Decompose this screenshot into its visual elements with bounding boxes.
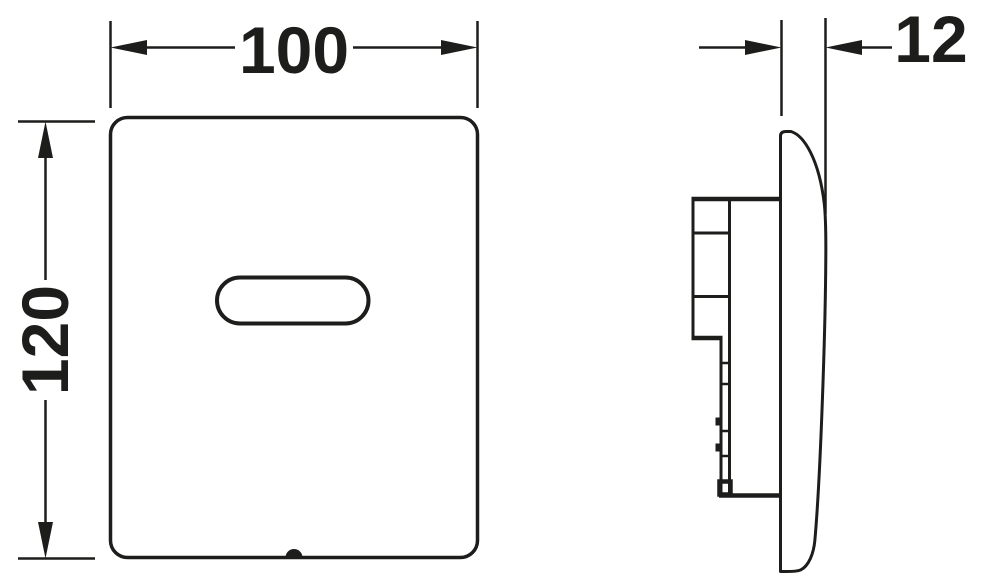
arrowhead-down-icon: [38, 522, 53, 559]
dimension-height-label: 120: [8, 285, 82, 395]
side-view: [692, 132, 826, 572]
plate-front-outline: [111, 118, 478, 558]
dimension-depth-label: 12: [894, 2, 967, 76]
electronics-housing: [692, 198, 781, 496]
dimension-depth: 12: [699, 2, 968, 214]
arrowhead-up-icon: [38, 122, 53, 159]
dimension-width-label: 100: [239, 13, 349, 87]
arrowhead-right-icon: [441, 40, 478, 55]
dimension-width: 100: [111, 13, 478, 108]
arrowhead-left-icon: [826, 40, 863, 55]
channel-clip-1: [716, 418, 723, 426]
dimension-height: 120: [8, 122, 95, 559]
sensor-window: [217, 278, 369, 324]
arrowhead-right-icon: [745, 40, 782, 55]
connector-block: [720, 482, 731, 495]
technical-drawing-canvas: 100 120: [0, 0, 988, 587]
channel-clip-2: [716, 444, 723, 452]
plate-side-profile: [781, 132, 826, 572]
arrowhead-left-icon: [111, 40, 148, 55]
flush-plate-drawing: 100 120: [0, 0, 988, 587]
front-view: [111, 118, 478, 558]
